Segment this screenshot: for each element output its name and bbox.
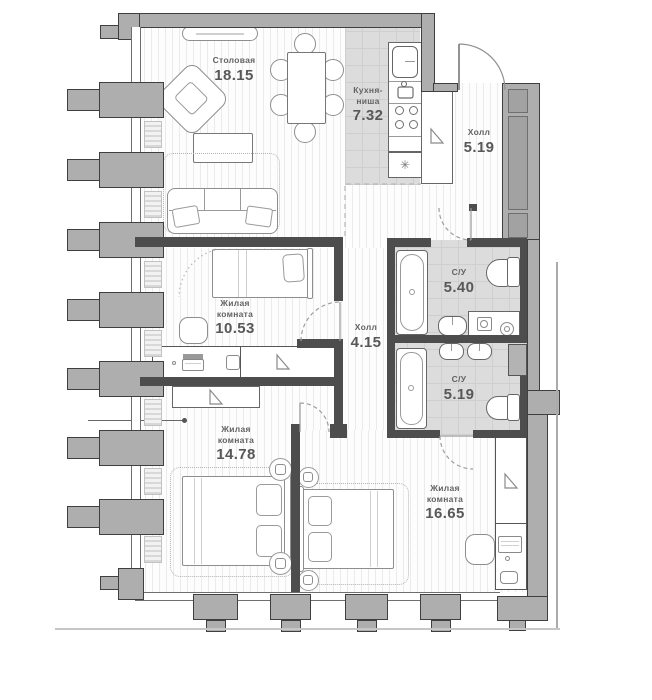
room-label-living-16: Жилая комната 16.65 (421, 483, 469, 524)
entrance-door-arc (459, 44, 505, 90)
kitchen-sink-icon (398, 87, 413, 98)
hanger-icon (505, 474, 517, 488)
floor-plan: ✳ (0, 0, 652, 700)
swing-arc-dotted (179, 250, 215, 297)
room-label-living-14: Жилая комната 14.78 (212, 424, 260, 465)
door-arc-bedroom10 (301, 302, 340, 341)
room-label-bathroom-2: С/У 5.19 (419, 374, 499, 404)
room-label-hall-inner: Холл 4.15 (342, 322, 390, 352)
room-label-bathroom-1: С/У 5.40 (419, 267, 499, 297)
room-label-hall-entry: Холл 5.19 (439, 127, 519, 157)
plan-annotations (0, 0, 652, 700)
hanger-icon (210, 390, 222, 404)
room-label-living-10: Жилая комната 10.53 (211, 298, 259, 339)
hanger-icon (277, 355, 289, 369)
door-arc-bath2 (440, 436, 473, 469)
door-arc-bedroom14 (300, 403, 329, 432)
door-arc-bath1 (439, 208, 471, 240)
kitchen-faucet-icon (402, 82, 407, 87)
room-label-kitchen-niche: Кухня-ниша 7.32 (346, 85, 390, 126)
room-label-dining: Столовая 18.15 (194, 55, 274, 85)
